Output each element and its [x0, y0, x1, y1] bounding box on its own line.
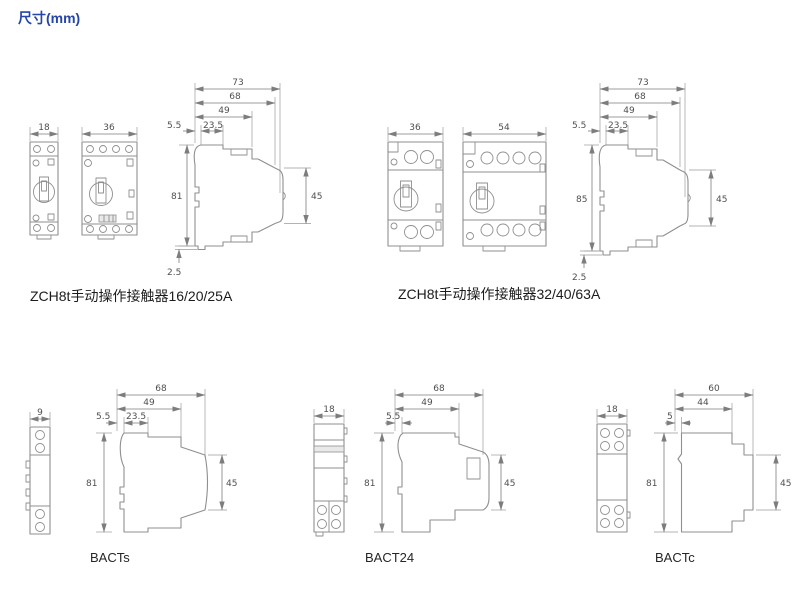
width-dimension: 18	[597, 405, 627, 423]
width-dimension: 36	[82, 123, 137, 141]
dim-top-back: 5	[667, 412, 673, 422]
dim-foot: 2.5	[167, 268, 181, 278]
dim-front-width: 9	[37, 408, 43, 418]
width-dimension: 18	[30, 123, 58, 141]
device-outline	[388, 142, 443, 251]
dim-front-height: 45	[311, 192, 322, 202]
page-title: 尺寸(mm)	[18, 8, 80, 28]
dim-height: 81	[171, 192, 182, 202]
width-dimension: 9	[30, 408, 50, 426]
zch8t-large-front-view-36: 36	[380, 118, 452, 258]
dim-top-back: 5.5	[386, 412, 400, 422]
dim-front-width: 18	[323, 405, 335, 415]
dim-top-front: 23.5	[608, 121, 628, 131]
dim-front-depth: 49	[143, 398, 155, 408]
dim-top-back: 5.5	[572, 121, 586, 131]
dimensions-page: 尺寸(mm) 18 36	[0, 0, 800, 616]
zch8t-small-side-view: 73 68 49 5.5 23.5 81 45 2.5	[165, 75, 335, 290]
dim-front-width: 54	[498, 123, 510, 133]
dim-body-depth: 68	[634, 92, 646, 102]
zch8t-large-side-view: 73 68 49 5.5 23.5 85 45 2.5	[570, 75, 742, 293]
dim-height: 85	[576, 195, 587, 205]
group-label-bactc: BACTc	[655, 550, 695, 565]
dim-front-height: 45	[226, 479, 237, 489]
device-outline	[26, 427, 50, 534]
dim-front-depth: 44	[697, 398, 709, 408]
bacts-front-view: 9	[16, 403, 66, 548]
dim-front-depth: 49	[623, 106, 635, 116]
dim-front-depth: 49	[218, 106, 230, 116]
dim-total-depth: 73	[232, 78, 243, 88]
zch8t-large-front-view-54: 54	[455, 118, 555, 258]
dim-top-front: 23.5	[126, 412, 146, 422]
dim-top-front: 23.5	[203, 121, 223, 131]
dim-body-depth: 60	[708, 384, 720, 394]
dim-front-height: 45	[716, 195, 727, 205]
dim-foot: 2.5	[572, 273, 586, 283]
dim-front-width: 36	[409, 123, 421, 133]
dim-front-width: 18	[38, 123, 50, 133]
group-label-bact24: BACT24	[365, 550, 414, 565]
zch8t-small-front-view-36: 36	[74, 118, 146, 250]
dim-front-depth: 49	[421, 398, 433, 408]
dimensions: 68 49 5.5 81 45	[364, 384, 515, 532]
dim-total-depth: 73	[637, 78, 648, 88]
width-dimension: 54	[463, 123, 546, 141]
device-outline	[30, 142, 58, 239]
width-dimension: 36	[388, 123, 443, 141]
dim-front-width: 36	[103, 123, 115, 133]
dim-front-width: 18	[606, 405, 618, 415]
bact24-front-view: 18	[302, 400, 358, 550]
group-label-bacts: BACTs	[90, 550, 130, 565]
dim-top-back: 5.5	[167, 121, 181, 131]
dim-height: 81	[646, 479, 657, 489]
bact24-side-view: 68 49 5.5 81 45	[360, 382, 512, 552]
device-outline	[82, 142, 137, 239]
dimensions: 73 68 49 5.5 23.5 81 45 2.5	[167, 78, 322, 278]
bacts-side-view: 68 49 5.5 23.5 81 45	[82, 382, 240, 552]
dim-body-depth: 68	[155, 384, 167, 394]
dim-body-depth: 68	[433, 384, 445, 394]
dim-top-back: 5.5	[96, 412, 110, 422]
device-outline	[463, 142, 546, 251]
device-outline	[314, 424, 347, 536]
group-label-zch8t-large: ZCH8t手动操作接触器32/40/63A	[398, 284, 600, 304]
dim-body-depth: 68	[229, 92, 241, 102]
dim-front-height: 45	[780, 479, 791, 489]
dimensions: 73 68 49 5.5 23.5 85 45 2.5	[572, 78, 727, 283]
zch8t-small-front-view-18: 18	[22, 118, 68, 250]
device-outline	[597, 424, 630, 532]
group-label-zch8t-small: ZCH8t手动操作接触器16/20/25A	[30, 286, 232, 306]
dim-height: 81	[364, 479, 375, 489]
dimensions: 60 44 5 81 45	[646, 384, 791, 532]
device-outline	[678, 433, 753, 532]
width-dimension: 18	[314, 405, 344, 423]
device-outline	[120, 433, 208, 532]
bactc-front-view: 18	[585, 400, 641, 550]
dim-height: 81	[86, 479, 97, 489]
bactc-side-view: 60 44 5 81 45	[640, 382, 798, 552]
device-outline	[194, 145, 285, 250]
dimensions: 68 49 5.5 23.5 81 45	[86, 384, 237, 532]
dim-front-height: 45	[504, 479, 515, 489]
device-outline	[599, 145, 690, 255]
device-outline	[398, 433, 489, 532]
